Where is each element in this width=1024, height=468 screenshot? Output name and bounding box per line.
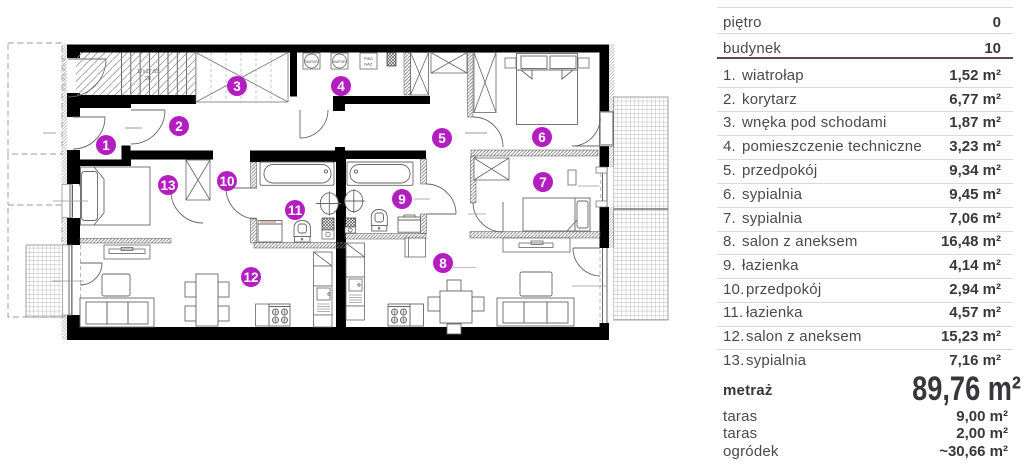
svg-text:11: 11 (288, 203, 303, 218)
svg-text:2: 2 (175, 119, 183, 134)
svg-text:BUFOR: BUFOR (333, 60, 346, 64)
svg-text:6: 6 (538, 130, 546, 145)
svg-text:1: 1 (102, 138, 110, 153)
svg-text:8: 8 (439, 256, 447, 271)
svg-text:17x17,65: 17x17,65 (137, 69, 160, 75)
svg-text:BUFOR: BUFOR (305, 60, 318, 64)
svg-text:13: 13 (160, 178, 176, 193)
svg-text:9: 9 (398, 192, 406, 207)
svg-text:12: 12 (243, 270, 258, 285)
svg-text:28: 28 (145, 76, 151, 82)
svg-text:10: 10 (219, 174, 234, 189)
svg-text:3: 3 (233, 79, 241, 94)
svg-text:GAZ.: GAZ. (364, 62, 373, 67)
svg-text:7: 7 (539, 175, 547, 190)
svg-text:4: 4 (337, 79, 345, 94)
svg-text:PIEC: PIEC (364, 56, 373, 61)
svg-text:5: 5 (438, 131, 446, 146)
